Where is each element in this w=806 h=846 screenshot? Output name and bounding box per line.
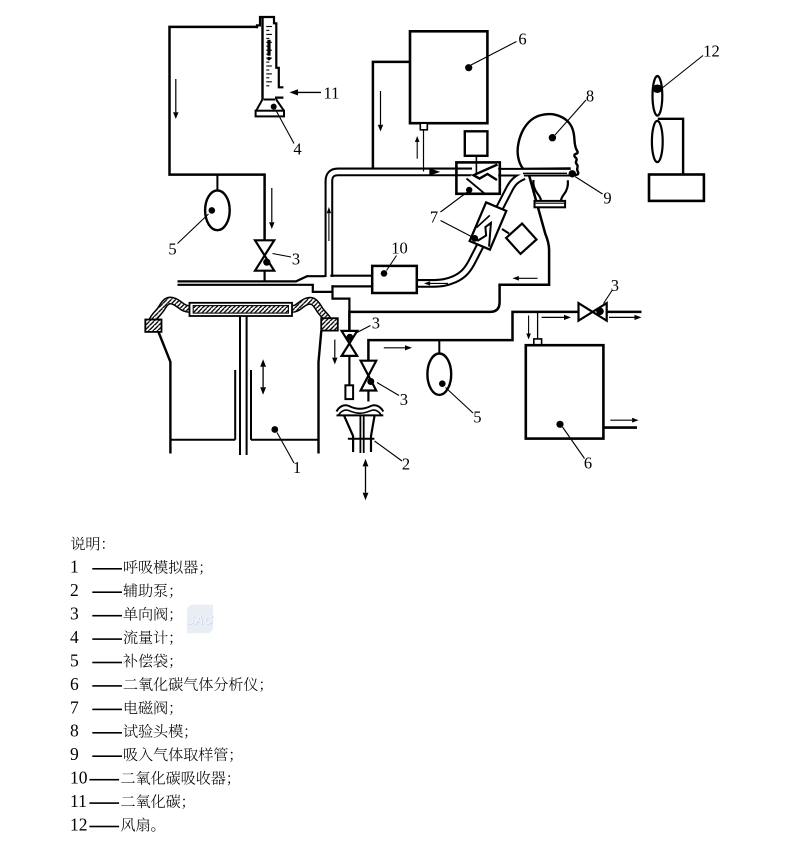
svg-text:8: 8 <box>586 86 594 105</box>
svg-text:10: 10 <box>391 238 408 257</box>
svg-text:5: 5 <box>70 650 79 670</box>
svg-text:1: 1 <box>293 458 301 477</box>
svg-text:7: 7 <box>70 697 79 717</box>
svg-text:8: 8 <box>70 721 79 741</box>
svg-text:4: 4 <box>293 139 301 158</box>
svg-text:12: 12 <box>703 41 720 60</box>
svg-text:5: 5 <box>168 239 176 258</box>
svg-text:3: 3 <box>292 249 300 268</box>
svg-text:10: 10 <box>70 768 88 788</box>
svg-text:6: 6 <box>70 674 79 694</box>
svg-text:1: 1 <box>70 557 79 577</box>
svg-text:6: 6 <box>584 454 592 473</box>
svg-text:3: 3 <box>372 313 380 332</box>
svg-text:3: 3 <box>70 604 79 624</box>
svg-text:4: 4 <box>70 627 79 647</box>
svg-text:7: 7 <box>430 207 438 226</box>
svg-text:12: 12 <box>70 814 88 834</box>
svg-text:2: 2 <box>70 580 79 600</box>
svg-text:6: 6 <box>518 29 526 48</box>
svg-text:3: 3 <box>400 390 408 409</box>
svg-text:SAC: SAC <box>186 613 213 627</box>
svg-text:5: 5 <box>473 408 481 427</box>
svg-text:9: 9 <box>603 188 611 207</box>
svg-text:2: 2 <box>402 454 410 473</box>
svg-text:11: 11 <box>70 791 87 811</box>
svg-text:9: 9 <box>70 744 79 764</box>
svg-text:3: 3 <box>611 276 619 295</box>
svg-text:11: 11 <box>324 83 340 102</box>
